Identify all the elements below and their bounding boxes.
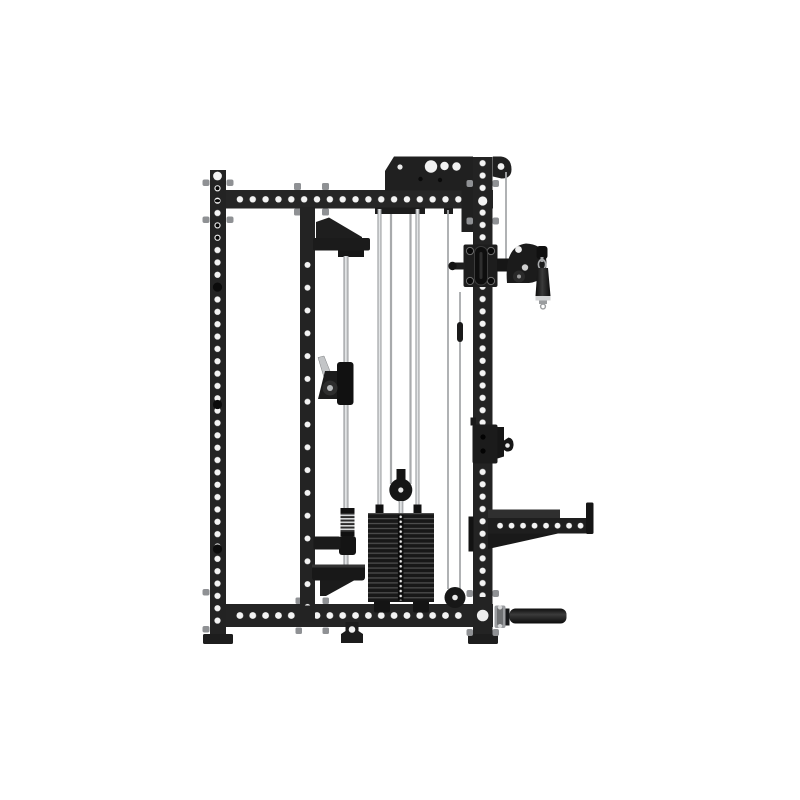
stack-foot — [374, 601, 390, 613]
band-peg-hole — [213, 283, 222, 292]
bolt — [203, 626, 210, 633]
hole-dark — [216, 223, 220, 227]
j-hook-plate — [473, 425, 498, 464]
housing-hole — [515, 246, 522, 253]
pulley-axle-hole — [498, 163, 505, 170]
plate-hole-dark — [438, 178, 442, 182]
arm-holes — [494, 518, 586, 534]
bolt — [203, 217, 210, 224]
product-image: Matte black half power rack with selecto… — [0, 0, 800, 800]
cable-stopper — [457, 322, 463, 342]
trolley-bolt — [466, 247, 473, 254]
bolt — [323, 598, 330, 605]
stack-guide-rod — [378, 209, 382, 513]
bolt — [467, 629, 474, 636]
bolt — [203, 180, 210, 187]
stack-foot — [413, 601, 429, 613]
arm-far-rail — [488, 510, 560, 519]
foot-plate — [203, 634, 233, 644]
landmine-sleeve — [510, 609, 567, 624]
housing-hole — [522, 264, 528, 270]
bolt — [493, 629, 500, 636]
plate-hole — [440, 162, 448, 170]
band-peg-hole — [213, 544, 222, 553]
carriage-block — [337, 362, 354, 405]
selector-pin-holes — [398, 515, 404, 601]
rod-cap — [414, 505, 422, 514]
j-hook-hole — [505, 443, 510, 448]
beam-bolt-hole — [477, 610, 489, 622]
bolt — [493, 218, 500, 225]
inner-upright — [300, 207, 315, 622]
bolt — [294, 209, 301, 216]
hole-dark — [216, 236, 220, 240]
background — [0, 0, 800, 800]
stop-arm — [314, 537, 341, 550]
rack-illustration: Matte black half power rack with selecto… — [0, 0, 800, 800]
plate-hole — [452, 162, 460, 170]
buffer-spring — [341, 513, 355, 532]
trolley-bolt — [466, 277, 473, 284]
rubber-grip — [536, 268, 551, 296]
plate-hole-dark — [418, 177, 422, 181]
rod-cap — [376, 505, 384, 514]
hole-dark — [216, 186, 220, 190]
bolt — [323, 628, 330, 635]
trolley-bolt — [487, 277, 494, 284]
bolt — [493, 590, 500, 597]
plate-hole — [397, 164, 402, 169]
slot-dark — [215, 199, 220, 202]
arm-end-plate — [586, 503, 594, 535]
bolt — [296, 628, 303, 635]
pop-pin-knob — [448, 262, 456, 270]
bolt — [227, 180, 234, 187]
bolt — [467, 180, 474, 187]
plate-hole — [425, 160, 437, 172]
trolley-bolt — [487, 247, 494, 254]
grip-end-cap — [536, 296, 551, 301]
foot-hole — [349, 626, 356, 633]
bolt — [227, 217, 234, 224]
bolt — [294, 183, 301, 190]
band-peg-hole — [213, 400, 222, 409]
stop-cylinder — [339, 536, 356, 555]
bolt — [467, 218, 474, 225]
stack-guide-rod — [416, 209, 420, 513]
bolt — [467, 590, 474, 597]
bolt — [203, 589, 210, 596]
bolt — [493, 180, 500, 187]
bolt — [322, 209, 329, 216]
lat-bracket-arm — [313, 238, 370, 251]
bolt — [322, 183, 329, 190]
